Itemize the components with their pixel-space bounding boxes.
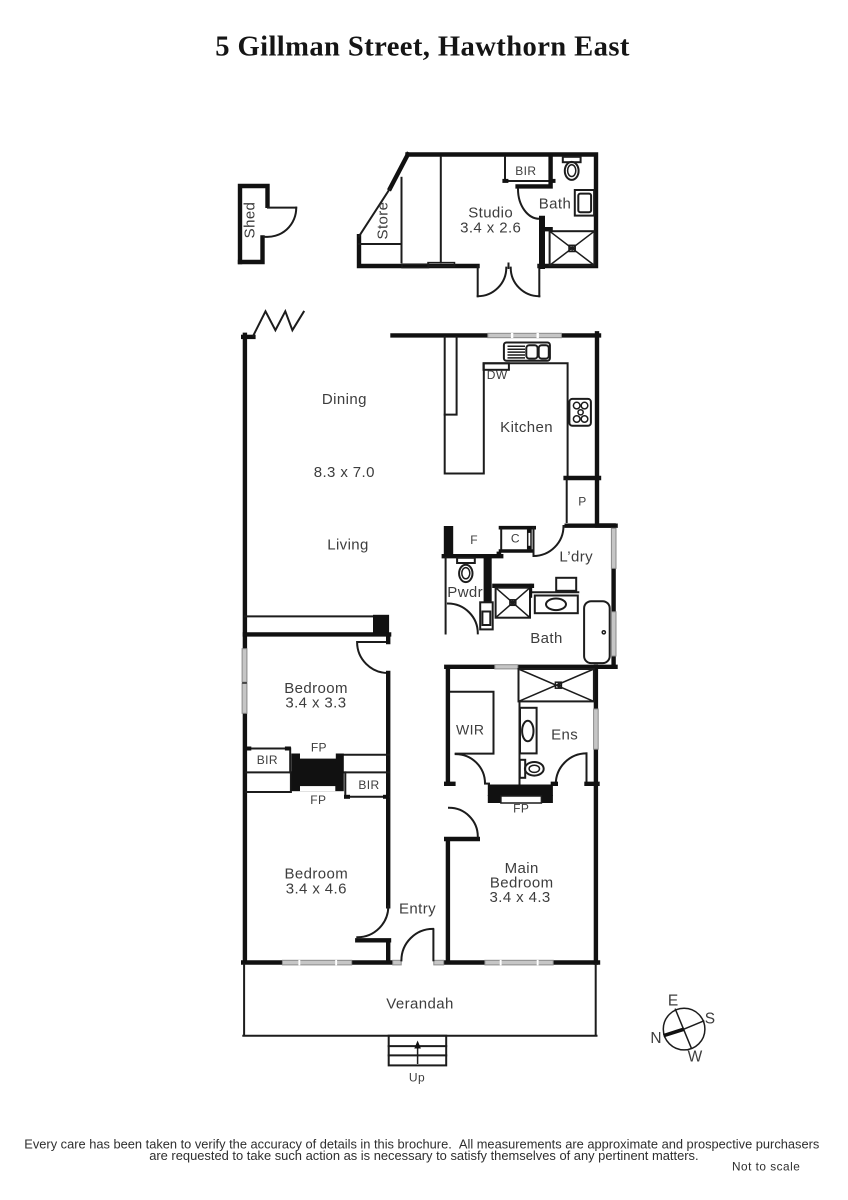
svg-text:WIR: WIR — [456, 721, 484, 737]
svg-text:8.3 x 7.0: 8.3 x 7.0 — [314, 464, 375, 481]
svg-text:are requested to take such act: are requested to take such action as is … — [149, 1148, 698, 1163]
svg-text:Store: Store — [375, 202, 392, 240]
svg-text:3.4 x 4.3: 3.4 x 4.3 — [490, 889, 551, 906]
svg-text:Bath: Bath — [530, 630, 562, 647]
svg-text:FP: FP — [513, 802, 529, 816]
svg-text:BIR: BIR — [515, 164, 536, 178]
svg-text:L’dry: L’dry — [559, 549, 593, 566]
svg-text:Entry: Entry — [399, 900, 436, 917]
svg-text:FP: FP — [310, 793, 326, 807]
svg-text:Not to scale: Not to scale — [732, 1159, 800, 1173]
svg-text:Dining: Dining — [322, 391, 367, 408]
svg-text:Verandah: Verandah — [386, 996, 453, 1013]
svg-text:Up: Up — [409, 1071, 425, 1085]
svg-text:F: F — [470, 533, 478, 547]
svg-text:S: S — [705, 1011, 716, 1028]
svg-text:3.4 x 2.6: 3.4 x 2.6 — [460, 219, 521, 236]
svg-text:3.4 x 3.3: 3.4 x 3.3 — [285, 695, 346, 712]
svg-text:Ens: Ens — [551, 727, 578, 744]
svg-text:DW: DW — [487, 368, 508, 382]
svg-text:Pwdr: Pwdr — [447, 584, 483, 601]
svg-text:N: N — [650, 1030, 662, 1047]
svg-text:C: C — [511, 532, 520, 546]
svg-text:Bath: Bath — [539, 196, 571, 213]
svg-text:P: P — [578, 495, 586, 509]
svg-text:5 Gillman Street, Hawthorn Eas: 5 Gillman Street, Hawthorn East — [215, 31, 630, 62]
svg-text:W: W — [688, 1048, 703, 1065]
svg-text:FP: FP — [311, 740, 327, 754]
svg-text:E: E — [668, 993, 679, 1010]
svg-text:Shed: Shed — [242, 202, 259, 239]
svg-text:3.4 x 4.6: 3.4 x 4.6 — [286, 880, 347, 897]
svg-text:BIR: BIR — [257, 753, 278, 767]
svg-text:Kitchen: Kitchen — [500, 419, 553, 436]
svg-text:BIR: BIR — [358, 778, 379, 792]
svg-text:Living: Living — [327, 537, 369, 554]
